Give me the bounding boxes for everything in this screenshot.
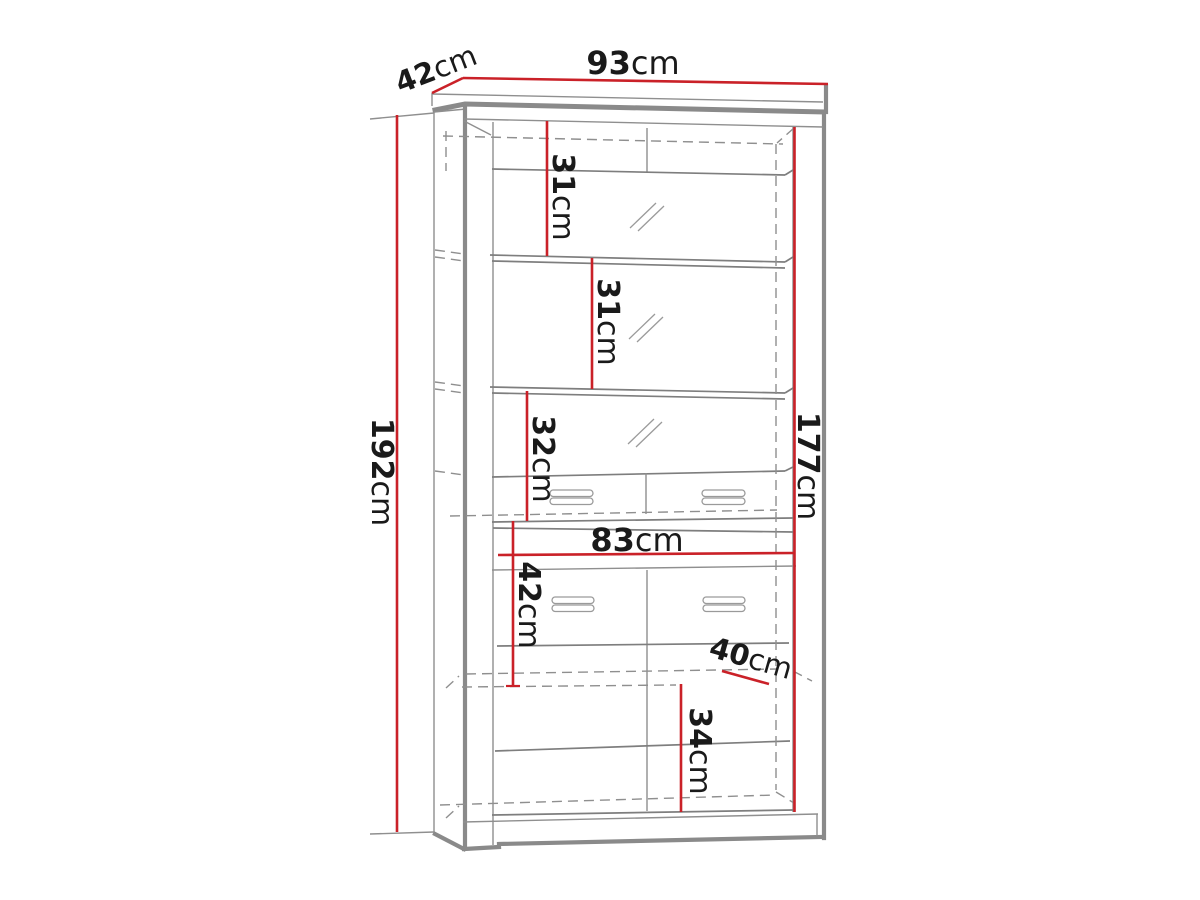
drawer-handle-icon bbox=[552, 597, 594, 604]
cabinet-drawing bbox=[370, 78, 828, 849]
dimension-diagram: 93cm 42cm 192cm 177cm 31cm 31cm 32cm 83c… bbox=[0, 0, 1200, 900]
glass-reflection-marks bbox=[628, 203, 664, 447]
dimension-label-lower-door-height: 34cm bbox=[683, 707, 718, 794]
dimension-label-lower-width: 83cm bbox=[590, 521, 683, 559]
cabinet-inner-frame bbox=[464, 119, 823, 845]
dimension-label-overall-width: 93cm bbox=[586, 44, 679, 82]
drawer-handle-icon bbox=[703, 597, 745, 604]
dimension-label-interior-height: 177cm bbox=[791, 412, 826, 520]
lower-cabinet bbox=[440, 144, 812, 818]
dimension-label-lower-drawer-height: 42cm bbox=[512, 561, 547, 648]
dimension-label-shelf-1: 31cm bbox=[546, 153, 581, 240]
dimension-lines bbox=[397, 78, 828, 832]
dimension-label-lower-depth: 40cm bbox=[706, 630, 797, 686]
top-rail bbox=[443, 128, 794, 175]
drawer-handle-icon bbox=[702, 490, 745, 497]
dimension-label-overall-height: 192cm bbox=[365, 418, 400, 526]
drawer-handle-icon bbox=[702, 498, 745, 505]
cabinet-diagram-svg: 93cm 42cm 192cm 177cm 31cm 31cm 32cm 83c… bbox=[0, 0, 1200, 900]
dimension-label-shelf-2: 31cm bbox=[591, 278, 626, 365]
drawer-handle-icon bbox=[552, 605, 594, 612]
drawer-handle-icon bbox=[703, 605, 745, 612]
upper-drawer-band bbox=[450, 467, 793, 522]
dimension-label-shelf-3: 32cm bbox=[526, 415, 561, 502]
